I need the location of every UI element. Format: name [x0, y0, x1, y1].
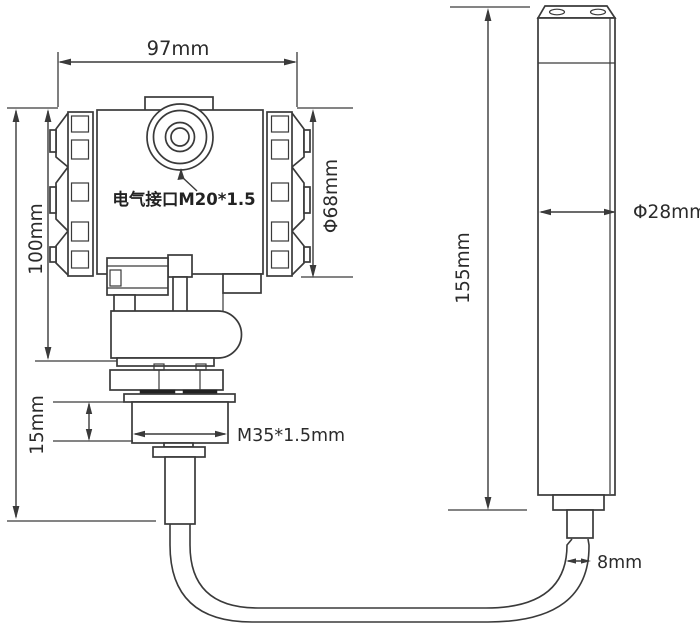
cable-gland-collar — [153, 447, 205, 457]
label-housing-width: 97mm — [147, 37, 210, 60]
probe-body — [538, 18, 615, 495]
label-electrical-port: 电气接口M20*1.5 — [112, 189, 255, 209]
process-connection — [110, 364, 235, 524]
transmitter-assembly — [50, 97, 310, 524]
thread-nut — [132, 402, 228, 443]
label-probe-diameter: Φ28mm — [633, 202, 700, 223]
hex-adapter — [110, 370, 223, 390]
housing-left-cap — [50, 112, 93, 276]
cable-entry-tube — [165, 457, 195, 524]
label-thread-length: 15mm — [27, 395, 48, 455]
dimension-probe-length: 155mm — [448, 7, 530, 510]
dimension-thread-length: 15mm — [27, 395, 133, 455]
coupling-body — [111, 311, 241, 366]
electrical-port-icon — [147, 104, 213, 170]
probe-assembly — [538, 6, 615, 538]
probe-cable-boot — [567, 510, 593, 538]
probe-end-step — [553, 495, 604, 510]
label-thread-spec: M35*1.5mm — [237, 426, 345, 446]
label-housing-diameter: Φ68mm — [321, 159, 342, 233]
label-cable-diameter: 8mm — [597, 553, 642, 573]
label-housing-height: 100mm — [26, 203, 47, 274]
flange-plate — [124, 394, 235, 402]
dimension-cable-diameter: 8mm — [566, 553, 642, 573]
transmitter-dimension-drawing: 97mm 100mm 15mm Φ68mm 15 — [0, 0, 700, 629]
connection-cable — [170, 524, 589, 622]
housing-right-cap — [267, 112, 310, 276]
drawing-canvas: 97mm 100mm 15mm Φ68mm 15 — [0, 0, 700, 629]
label-probe-length: 155mm — [453, 232, 474, 303]
